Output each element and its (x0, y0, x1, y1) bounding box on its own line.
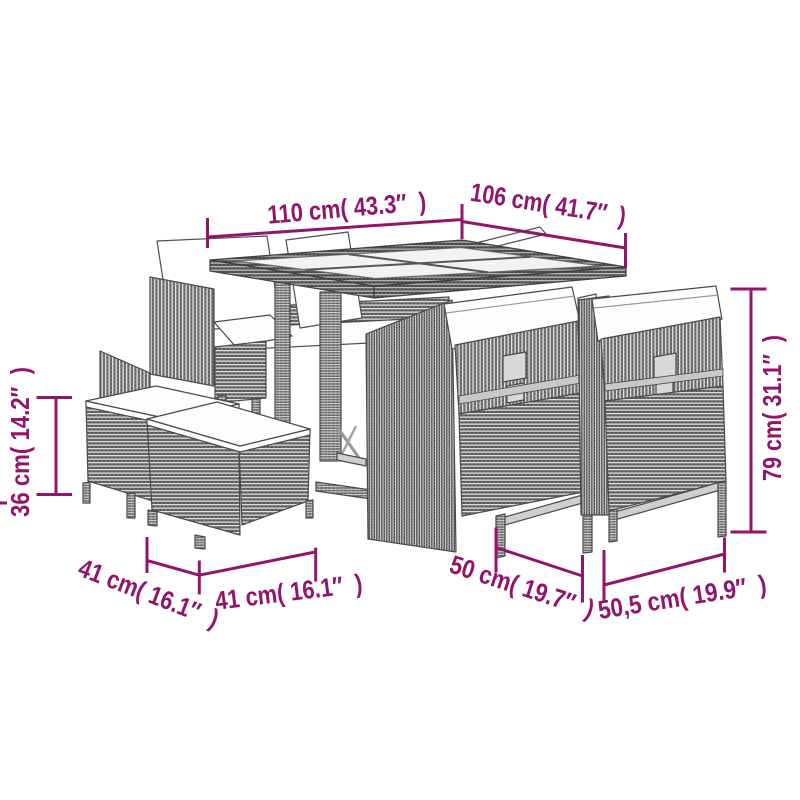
svg-text:79 cm( 31.1″ ): 79 cm( 31.1″ ) (757, 335, 787, 481)
svg-text:36 cm( 14.2″ ): 36 cm( 14.2″ ) (5, 367, 35, 517)
